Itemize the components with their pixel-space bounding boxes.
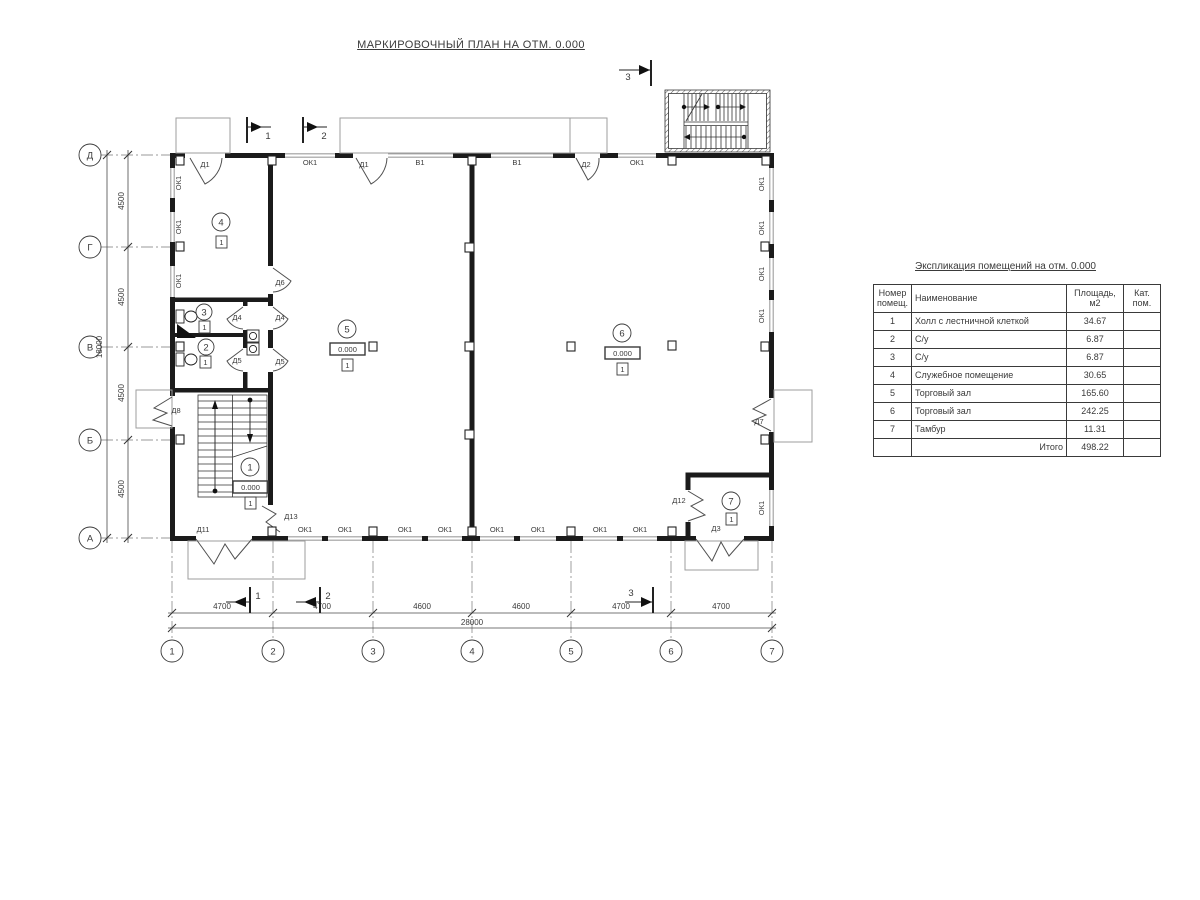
label-window: ОК1 bbox=[757, 501, 766, 515]
axis-row-5: А bbox=[87, 534, 94, 545]
label-glazing: В1 bbox=[512, 158, 521, 167]
label-door: Д1 bbox=[200, 160, 209, 169]
axis-col-3: 3 bbox=[370, 647, 375, 658]
dim-left-1: 4500 bbox=[117, 192, 126, 210]
axis-labels: Д Г В Б А 1 2 3 4 5 6 7 bbox=[87, 151, 775, 658]
sink-bowl bbox=[249, 332, 256, 339]
label-window: ОК1 bbox=[438, 525, 452, 534]
room-number-5: 5 bbox=[344, 325, 349, 336]
label-window: ОК1 bbox=[174, 176, 183, 190]
label-glazing: В1 bbox=[415, 158, 424, 167]
room-number-1: 1 bbox=[247, 463, 252, 474]
label-window: ОК1 bbox=[633, 525, 647, 534]
toilet-cistern bbox=[176, 310, 184, 323]
label-window: ОК1 bbox=[630, 158, 644, 167]
axis-col-1: 1 bbox=[169, 647, 174, 658]
label-door: Д5 bbox=[275, 357, 284, 366]
axis-col-2: 2 bbox=[270, 647, 275, 658]
axis-row-1: Д bbox=[87, 151, 94, 162]
section-mark-3b: 3 bbox=[628, 588, 633, 599]
dim-left-4: 4500 bbox=[117, 480, 126, 498]
floor-type-mark: 1 bbox=[219, 238, 223, 247]
label-window: ОК1 bbox=[174, 220, 183, 234]
floor-type-mark: 1 bbox=[345, 361, 349, 370]
label-door: Д12 bbox=[672, 496, 685, 505]
door-d7 bbox=[752, 399, 771, 431]
dim-bottom-1: 4700 bbox=[213, 602, 231, 611]
axis-col-6: 6 bbox=[668, 647, 673, 658]
label-window: ОК1 bbox=[531, 525, 545, 534]
room-number-7: 7 bbox=[728, 497, 733, 508]
dimension-labels: 4500 4500 4500 4500 18000 4700 4700 4600… bbox=[95, 192, 730, 627]
toilet-bowl bbox=[185, 354, 197, 365]
label-door: Д4 bbox=[232, 313, 241, 322]
level-mark: 0.000 bbox=[241, 483, 260, 492]
dim-bottom-5: 4700 bbox=[612, 602, 630, 611]
sink-bowl bbox=[249, 345, 256, 352]
dim-bottom-total: 28000 bbox=[461, 618, 484, 627]
label-window: ОК1 bbox=[490, 525, 504, 534]
door-d11 bbox=[196, 539, 252, 564]
dim-left-3: 4500 bbox=[117, 384, 126, 402]
dim-bottom-4: 4600 bbox=[512, 602, 530, 611]
label-door: Д8 bbox=[171, 406, 180, 415]
room-markers: 1 2 3 4 5 6 7 0.000 0.000 0.000 1 1 1 1 … bbox=[196, 213, 740, 525]
section-mark-2: 2 bbox=[321, 131, 326, 142]
axis-row-4: Б bbox=[87, 436, 93, 447]
door-d12 bbox=[688, 491, 705, 521]
label-window: ОК1 bbox=[757, 221, 766, 235]
door-d8 bbox=[153, 397, 172, 426]
label-door: Д6 bbox=[275, 278, 284, 287]
label-door: Д4 bbox=[275, 313, 284, 322]
label-window: ОК1 bbox=[298, 525, 312, 534]
label-door: Д1 bbox=[359, 160, 368, 169]
toilet-bowl bbox=[185, 311, 197, 322]
room-number-3: 3 bbox=[201, 308, 206, 319]
label-window: ОК1 bbox=[593, 525, 607, 534]
sanitary-fixtures bbox=[176, 310, 259, 366]
level-mark: 0.000 bbox=[338, 345, 357, 354]
label-window: ОК1 bbox=[757, 177, 766, 191]
label-window: ОК1 bbox=[757, 309, 766, 323]
label-door: Д13 bbox=[284, 512, 297, 521]
floor-type-mark: 1 bbox=[620, 365, 624, 374]
room-number-6: 6 bbox=[619, 329, 624, 340]
label-door: Д11 bbox=[197, 525, 210, 534]
door-d3 bbox=[696, 539, 744, 561]
floor-type-mark: 1 bbox=[248, 499, 252, 508]
section-mark-1: 1 bbox=[265, 131, 270, 142]
level-mark: 0.000 bbox=[613, 349, 632, 358]
section-mark-2b: 2 bbox=[325, 591, 330, 602]
label-door: Д2 bbox=[581, 160, 590, 169]
section-mark-3: 3 bbox=[625, 72, 630, 83]
dim-bottom-3: 4600 bbox=[413, 602, 431, 611]
label-window: ОК1 bbox=[303, 158, 317, 167]
floor-type-mark: 1 bbox=[203, 358, 207, 367]
axis-bubbles bbox=[79, 144, 783, 662]
external-staircase bbox=[665, 90, 770, 152]
floor-plan: 4500 4500 4500 4500 18000 4700 4700 4600… bbox=[0, 0, 1200, 900]
axis-row-3: В bbox=[87, 343, 93, 354]
dim-left-2: 4500 bbox=[117, 288, 126, 306]
floor-type-mark: 1 bbox=[202, 323, 206, 332]
label-window: ОК1 bbox=[398, 525, 412, 534]
axis-grid bbox=[101, 155, 772, 640]
label-window: ОК1 bbox=[174, 274, 183, 288]
room-number-4: 4 bbox=[218, 218, 223, 229]
drawing-sheet: МАРКИРОВОЧНЫЙ ПЛАН НА ОТМ. 0.000 Эксплик… bbox=[0, 0, 1200, 900]
label-window: ОК1 bbox=[757, 267, 766, 281]
label-window: ОК1 bbox=[338, 525, 352, 534]
dim-bottom-6: 4700 bbox=[712, 602, 730, 611]
axis-row-2: Г bbox=[87, 243, 92, 254]
axis-col-4: 4 bbox=[469, 647, 474, 658]
axis-col-7: 7 bbox=[769, 647, 774, 658]
label-door: Д5 bbox=[232, 356, 241, 365]
label-door: Д3 bbox=[711, 524, 720, 533]
dim-left-total: 18000 bbox=[95, 335, 104, 358]
toilet-cistern bbox=[176, 353, 184, 366]
room-number-2: 2 bbox=[203, 343, 208, 354]
section-mark-1b: 1 bbox=[255, 591, 260, 602]
label-door: Д7 bbox=[754, 417, 763, 426]
floor-type-mark: 1 bbox=[729, 515, 733, 524]
axis-col-5: 5 bbox=[568, 647, 573, 658]
